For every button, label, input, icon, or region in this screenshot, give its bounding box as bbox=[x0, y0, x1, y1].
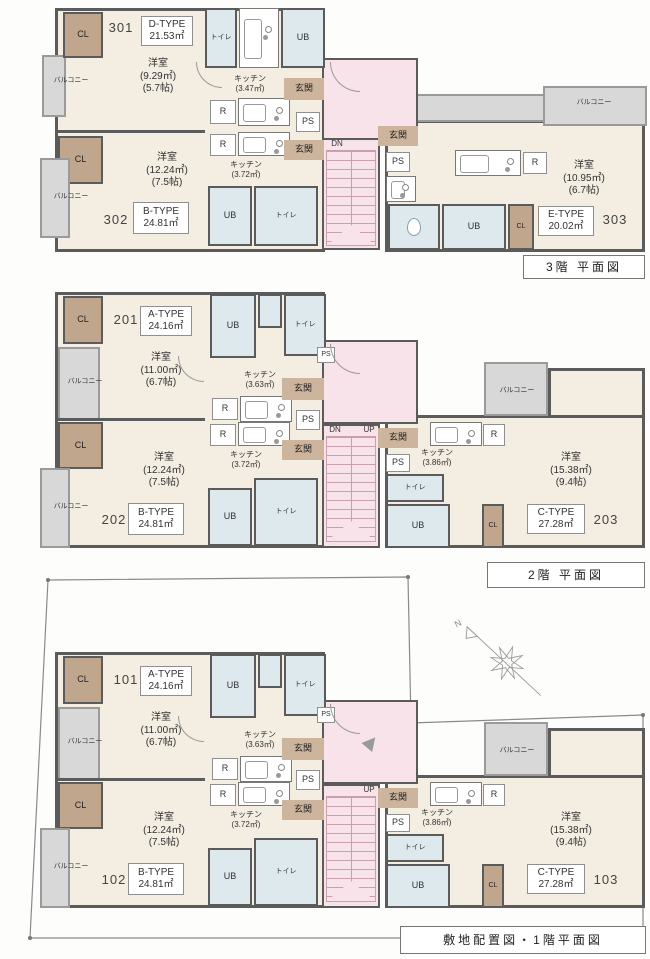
unit-103-number: 103 bbox=[588, 872, 624, 889]
unit-101-type: A-TYPE 24.16㎡ bbox=[140, 666, 192, 696]
room-103-label: 洋室 (15.38㎡) (9.4帖) bbox=[525, 808, 617, 854]
kitchen-103-label: キッチン (3.86㎡) bbox=[406, 806, 468, 830]
r-102: R bbox=[210, 784, 236, 806]
unit-101-number: 101 bbox=[108, 672, 144, 688]
ub-102: UB bbox=[208, 848, 252, 906]
balcony-102-label: バルコニー bbox=[40, 862, 102, 872]
unit-102-type: B-TYPE 24.81㎡ bbox=[128, 863, 184, 895]
toilet-102: トイレ bbox=[254, 838, 318, 906]
unit-103-type: C-TYPE 27.28㎡ bbox=[527, 864, 585, 894]
r-103: R bbox=[483, 784, 505, 806]
genkan-102: 玄関 bbox=[282, 800, 324, 820]
wall-101-102 bbox=[55, 778, 205, 781]
genkan-103: 玄関 bbox=[378, 788, 418, 808]
r-101: R bbox=[212, 758, 238, 780]
room-102-label: 洋室 (12.24㎡) (7.5帖) bbox=[116, 808, 212, 854]
ub-101: UB bbox=[210, 654, 256, 718]
wash-101 bbox=[258, 654, 282, 688]
balcony-103-label: バルコニー bbox=[488, 746, 546, 757]
ub-103: UB bbox=[386, 864, 450, 908]
toilet-103: トイレ bbox=[386, 834, 444, 862]
room-103-upper bbox=[548, 728, 645, 778]
floor-plan-document: N CLバルコニー301D-TYPE 21.53㎡洋室 (9.29㎡) (5.7… bbox=[0, 0, 650, 959]
floor-1-site-plan: バルコニーCL101A-TYPE 24.16㎡洋室 (11.00㎡) (6.7帖… bbox=[0, 0, 650, 959]
closet-101: CL bbox=[63, 656, 103, 704]
unit-102-number: 102 bbox=[96, 872, 132, 889]
counter-103 bbox=[430, 782, 482, 806]
stairs-1f bbox=[326, 796, 376, 902]
closet-103: CL bbox=[482, 864, 504, 908]
genkan-101: 玄関 bbox=[282, 738, 324, 760]
ps-101: PS bbox=[296, 770, 320, 790]
balcony-101-label: バルコニー bbox=[54, 737, 116, 747]
closet-102: CL bbox=[58, 782, 103, 829]
kitchen-102-label: キッチン (3.72㎡) bbox=[208, 808, 284, 832]
caption-1f: 敷地配置図・1階平面図 bbox=[400, 926, 646, 954]
